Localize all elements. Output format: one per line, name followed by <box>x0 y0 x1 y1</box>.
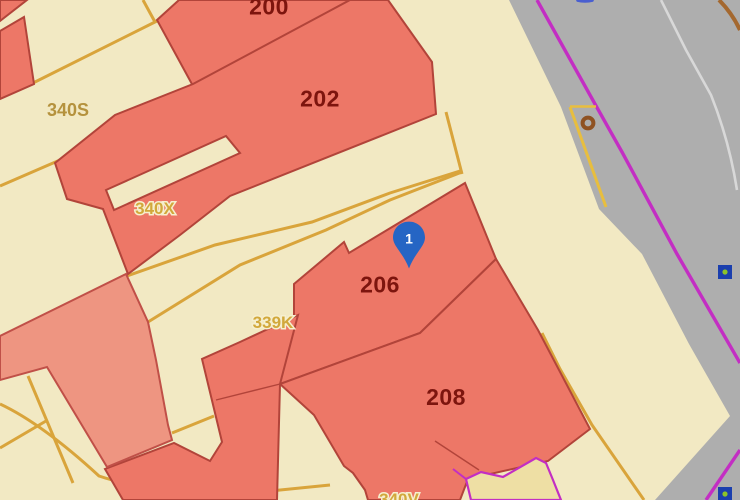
svg-text:1: 1 <box>405 231 413 247</box>
svg-text:339K: 339K <box>253 313 294 332</box>
svg-text:340S: 340S <box>47 100 89 120</box>
svg-text:340X: 340X <box>135 199 175 218</box>
svg-text:206: 206 <box>360 272 400 298</box>
svg-text:340V: 340V <box>379 490 419 500</box>
svg-text:202: 202 <box>300 86 340 112</box>
svg-text:208: 208 <box>426 384 466 410</box>
svg-text:200: 200 <box>249 0 289 20</box>
